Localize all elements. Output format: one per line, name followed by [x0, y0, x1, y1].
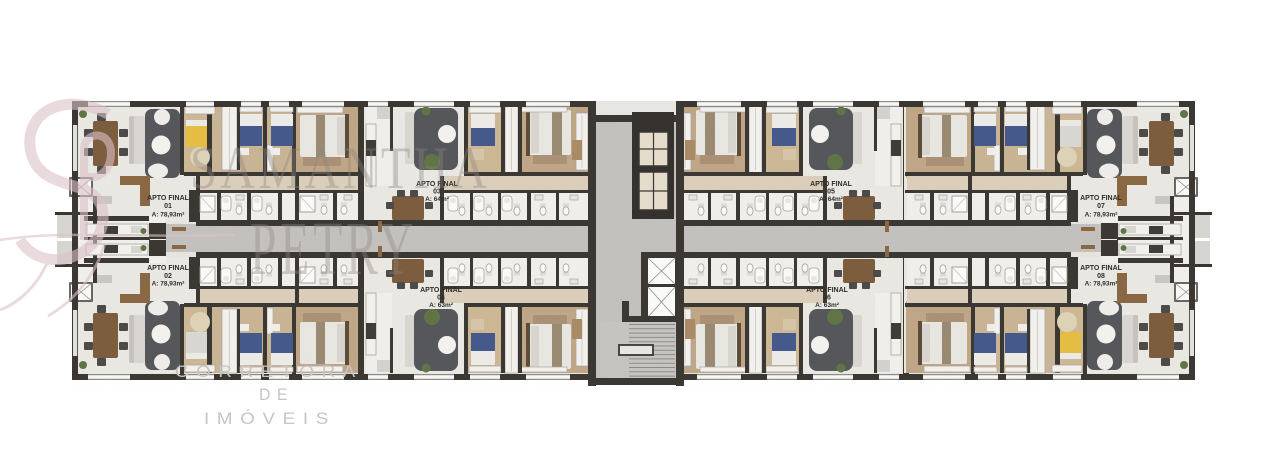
svg-text:IMÓVEIS: IMÓVEIS: [204, 409, 336, 428]
svg-text:PETRY: PETRY: [250, 207, 417, 291]
svg-text:DE: DE: [259, 385, 294, 404]
svg-text:SAMANTHA: SAMANTHA: [190, 135, 490, 201]
svg-text:CORRETORA: CORRETORA: [175, 362, 363, 381]
